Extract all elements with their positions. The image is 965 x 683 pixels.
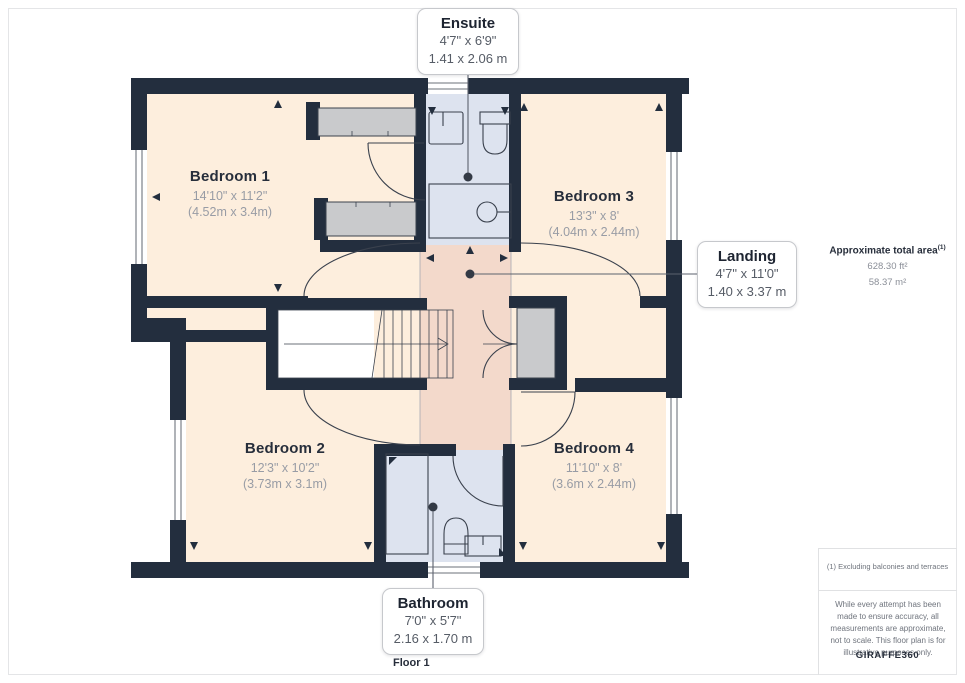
landing-anchor-dot (466, 270, 475, 279)
window-bathroom (428, 562, 480, 578)
floorplan-drawing (0, 0, 965, 683)
sidebar-divider (818, 548, 957, 549)
total-area-title: Approximate total area(1) (818, 244, 957, 256)
room-label-bedroom-1: Bedroom 1 14'10" x 11'2" (4.52m x 3.4m) (140, 168, 320, 221)
total-area-ft: 628.30 ft² (818, 261, 957, 272)
total-area-block: Approximate total area(1) 628.30 ft² 58.… (818, 244, 957, 288)
callout-ensuite: Ensuite 4'7" x 6'9" 1.41 x 2.06 m (417, 8, 519, 75)
bathroom-anchor-dot (429, 503, 438, 512)
window-bedroom2 (170, 420, 186, 520)
floor-areas (139, 86, 682, 570)
window-ensuite (428, 78, 468, 94)
floor-label: Floor 1 (393, 657, 430, 669)
floorplan-canvas: Bedroom 1 14'10" x 11'2" (4.52m x 3.4m) … (0, 0, 965, 683)
total-area-m: 58.37 m² (818, 277, 957, 288)
room-label-bedroom-4: Bedroom 4 11'10" x 8' (3.6m x 2.44m) (504, 440, 684, 493)
landing-floor (420, 245, 511, 450)
giraffe360-logo: GIRAFFE360 (818, 650, 957, 661)
ensuite-anchor-dot (464, 173, 473, 182)
sidebar-divider (818, 590, 957, 591)
room-label-bedroom-2: Bedroom 2 12'3" x 10'2" (3.73m x 3.1m) (195, 440, 375, 493)
callout-landing: Landing 4'7" x 11'0" 1.40 x 3.37 m (697, 241, 797, 308)
room-label-bedroom-3: Bedroom 3 13'3" x 8' (4.04m x 2.44m) (504, 188, 684, 241)
callout-bathroom: Bathroom 7'0" x 5'7" 2.16 x 1.70 m (382, 588, 484, 655)
area-footnote: (1) Excluding balconies and terraces (820, 562, 955, 571)
